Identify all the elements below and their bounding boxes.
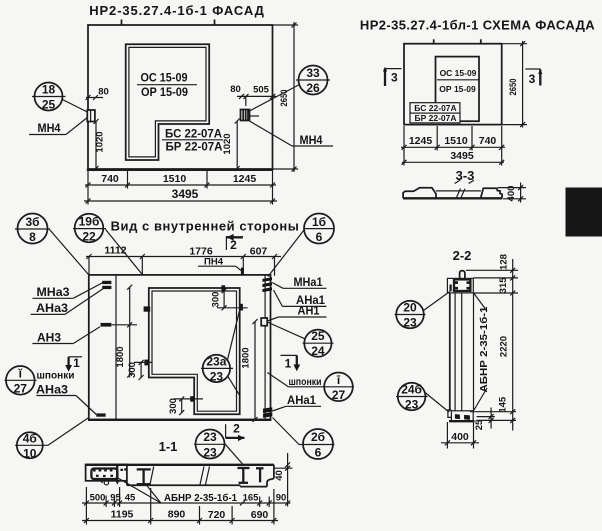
- svg-text:3: 3: [529, 72, 536, 86]
- svg-text:300: 300: [168, 398, 179, 414]
- svg-text:23: 23: [203, 446, 217, 460]
- svg-text:ОС 15-09: ОС 15-09: [440, 68, 477, 78]
- svg-text:45: 45: [125, 493, 136, 504]
- svg-text:25: 25: [42, 98, 56, 112]
- svg-text:10: 10: [23, 446, 37, 460]
- svg-text:25: 25: [474, 419, 485, 430]
- svg-text:720: 720: [208, 509, 226, 521]
- svg-text:23: 23: [210, 370, 224, 384]
- svg-text:1245: 1245: [409, 135, 433, 147]
- svg-text:22: 22: [82, 230, 96, 244]
- svg-text:1-1: 1-1: [159, 439, 178, 454]
- svg-text:шпонки: шпонки: [37, 370, 75, 382]
- svg-text:26: 26: [306, 81, 320, 95]
- svg-text:80: 80: [98, 87, 109, 98]
- svg-text:505: 505: [253, 85, 270, 96]
- svg-text:МН4: МН4: [300, 133, 323, 147]
- svg-text:АНа3: АНа3: [36, 383, 68, 397]
- svg-text:БР 22-07А: БР 22-07А: [166, 140, 223, 154]
- svg-text:1800: 1800: [115, 346, 126, 367]
- svg-text:24: 24: [311, 344, 325, 358]
- svg-text:3б: 3б: [25, 215, 39, 229]
- svg-text:1510: 1510: [163, 173, 187, 185]
- svg-text:3495: 3495: [450, 150, 474, 162]
- svg-text:БР 22-07А: БР 22-07А: [414, 113, 456, 123]
- svg-text:АНа1: АНа1: [287, 393, 316, 407]
- svg-text:Вид с внутренней стороны: Вид с внутренней стороны: [111, 219, 300, 234]
- svg-text:3495: 3495: [172, 187, 199, 201]
- svg-text:23: 23: [405, 398, 419, 412]
- svg-text:128: 128: [498, 254, 509, 270]
- svg-text:2б: 2б: [311, 430, 325, 444]
- svg-text:400: 400: [506, 186, 517, 202]
- svg-text:23: 23: [203, 430, 217, 444]
- svg-text:МН4: МН4: [38, 121, 61, 135]
- svg-text:АН3: АН3: [37, 331, 61, 345]
- svg-text:33: 33: [306, 66, 320, 80]
- svg-text:27: 27: [14, 381, 28, 395]
- svg-text:740: 740: [479, 135, 497, 147]
- svg-text:ОР 15-09: ОР 15-09: [439, 84, 476, 94]
- svg-text:6: 6: [315, 446, 322, 460]
- svg-text:НР2-35.27.4-1б-1 ФАСАД: НР2-35.27.4-1б-1 ФАСАД: [89, 3, 265, 18]
- svg-text:1112: 1112: [104, 245, 126, 257]
- svg-text:МНа3: МНа3: [37, 285, 70, 299]
- svg-text:ĭ: ĭ: [18, 366, 23, 380]
- svg-text:20: 20: [403, 301, 417, 315]
- svg-text:2: 2: [230, 238, 237, 252]
- svg-text:ОС 15-09: ОС 15-09: [141, 71, 188, 85]
- svg-text:1800: 1800: [241, 347, 252, 368]
- svg-text:24б: 24б: [401, 383, 422, 397]
- svg-text:6: 6: [316, 230, 323, 244]
- svg-text:80: 80: [230, 84, 241, 95]
- svg-text:690: 690: [251, 509, 269, 521]
- svg-text:МНа1: МНа1: [294, 275, 323, 289]
- svg-text:АБНР 2-35-1б-1: АБНР 2-35-1б-1: [478, 306, 490, 392]
- svg-text:315: 315: [498, 277, 509, 294]
- svg-text:АБНР 2-35-1б-1: АБНР 2-35-1б-1: [164, 492, 237, 504]
- svg-text:23а: 23а: [206, 355, 226, 369]
- svg-text:890: 890: [168, 509, 186, 521]
- svg-text:АНа3: АНа3: [36, 301, 68, 315]
- svg-text:18: 18: [42, 83, 56, 97]
- svg-text:90: 90: [276, 493, 287, 504]
- svg-text:АН1: АН1: [298, 304, 320, 318]
- svg-text:300: 300: [211, 292, 222, 308]
- svg-text:1: 1: [285, 357, 292, 371]
- svg-text:1195: 1195: [111, 509, 134, 521]
- svg-text:1510: 1510: [444, 135, 468, 147]
- svg-text:95: 95: [110, 493, 121, 504]
- svg-text:1020: 1020: [95, 131, 106, 152]
- svg-text:740: 740: [101, 173, 119, 185]
- svg-text:400: 400: [451, 431, 469, 443]
- svg-text:4б: 4б: [23, 431, 37, 445]
- svg-text:165: 165: [243, 493, 260, 504]
- svg-text:1: 1: [73, 356, 80, 370]
- svg-text:2220: 2220: [498, 336, 509, 357]
- svg-text:300: 300: [127, 362, 138, 378]
- svg-text:607: 607: [250, 246, 268, 258]
- svg-text:НР2-35.27.4-1бл-1 СХЕМА ФАСАДА: НР2-35.27.4-1бл-1 СХЕМА ФАСАДА: [360, 18, 595, 33]
- svg-text:500: 500: [90, 493, 106, 504]
- svg-text:19б: 19б: [79, 215, 100, 229]
- svg-text:1020: 1020: [222, 133, 233, 154]
- svg-text:40: 40: [274, 470, 285, 481]
- svg-text:2: 2: [233, 422, 240, 436]
- svg-text:27: 27: [332, 388, 346, 402]
- svg-text:ī: ī: [336, 373, 341, 387]
- svg-text:145: 145: [497, 396, 508, 413]
- svg-text:25: 25: [311, 329, 325, 343]
- svg-text:БС 22-07А: БС 22-07А: [414, 103, 456, 113]
- svg-text:23: 23: [403, 316, 417, 330]
- svg-text:8: 8: [29, 230, 36, 244]
- svg-text:1б: 1б: [312, 215, 326, 229]
- svg-text:3: 3: [391, 71, 398, 85]
- svg-text:2650: 2650: [508, 79, 519, 96]
- svg-text:1245: 1245: [233, 173, 257, 185]
- svg-text:ОР 15-09: ОР 15-09: [141, 85, 188, 99]
- svg-text:2-2: 2-2: [453, 248, 472, 263]
- svg-text:БС 22-07А: БС 22-07А: [165, 127, 222, 141]
